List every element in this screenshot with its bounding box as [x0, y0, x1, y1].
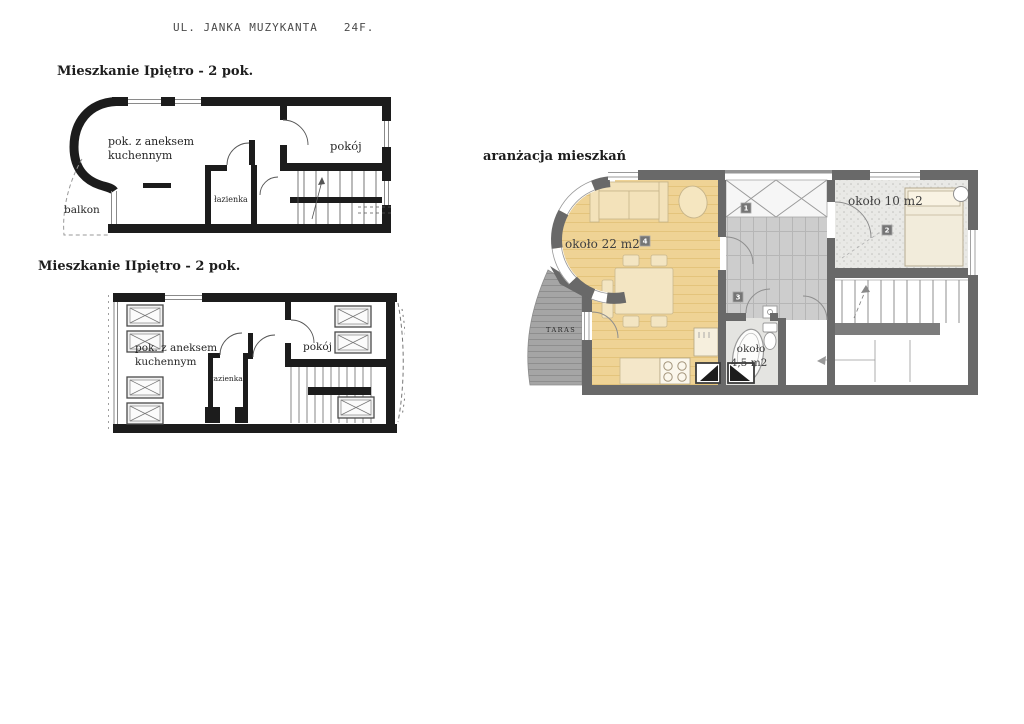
floor2-roof-dashed-arcs — [398, 303, 405, 422]
arrangement-plan: TARAS — [520, 160, 990, 400]
floor2-left-wall — [109, 295, 118, 430]
svg-text:1: 1 — [744, 205, 749, 213]
column — [954, 187, 969, 202]
svg-text:2: 2 — [885, 227, 890, 235]
floor2-living-label-line2: kuchennym — [135, 356, 196, 368]
living-area-label: około 22 m2 — [565, 237, 640, 251]
hall-floor — [786, 320, 827, 385]
floor2-title: Mieszkanie IIpiętro - 2 pok. — [38, 259, 240, 274]
floor1-living-label-line1: pok. z aneksem — [108, 135, 195, 148]
floor1-balcony-edge — [64, 159, 108, 235]
terrace-label: TARAS — [546, 326, 576, 334]
floor2-living-label-line1: pok. z aneksem — [135, 342, 217, 354]
floor2-stairs-landing — [308, 387, 371, 395]
corridor-badge: 3 — [733, 292, 743, 302]
floor1-bathroom-label: łazienka — [214, 195, 248, 204]
bathroom-area-label-line1: około — [737, 343, 766, 355]
floor2-door-arcs — [220, 320, 314, 357]
floor2-plan: pok. z aneksem kuchennym łazienka pokój — [105, 285, 405, 445]
floor1-title: Mieszkanie Ipiętro - 2 pok. — [57, 64, 253, 79]
living-badge: 4 — [640, 236, 650, 246]
floor2-bathroom-label: łazienka — [211, 374, 243, 383]
floor1-plan: pok. z aneksem kuchennym łazienka pokój … — [58, 85, 398, 250]
floor1-living-label-line2: kuchennym — [108, 149, 173, 162]
svg-text:3: 3 — [736, 294, 741, 302]
floor1-balcony-label: balkon — [64, 204, 100, 216]
bedroom-badge: 2 — [882, 225, 892, 235]
floor2-room-label: pokój — [303, 341, 332, 353]
street-number: 24F. — [344, 21, 375, 34]
street-name: UL. JANKA MUZYKANTA — [173, 21, 318, 34]
floor1-door-arcs — [227, 120, 308, 195]
floor1-stairs-arrowhead — [318, 177, 325, 185]
stairs — [817, 280, 968, 382]
street-address-header: UL. JANKA MUZYKANTA24F. — [173, 21, 374, 34]
floor1-room-label: pokój — [330, 139, 362, 153]
floor1-walls — [108, 97, 391, 233]
bedroom-area-label: około 10 m2 — [848, 194, 923, 208]
floor2-window-top — [165, 296, 202, 300]
scanned-floorplan-page: UL. JANKA MUZYKANTA24F. Mieszkanie Ipięt… — [0, 0, 1024, 724]
fridge — [694, 328, 718, 356]
svg-text:4: 4 — [643, 238, 648, 246]
hall-badge: 1 — [741, 203, 751, 213]
bathroom-area-label-line2: 4,5 m2 — [731, 357, 768, 369]
